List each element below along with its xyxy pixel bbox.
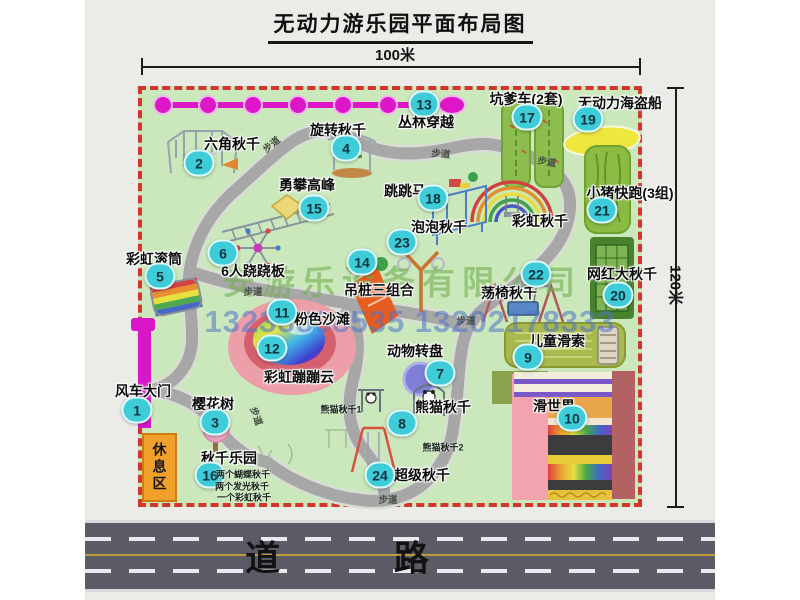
walkway-label-3: 步道: [536, 152, 557, 169]
poi-badge-8: 8: [387, 410, 418, 437]
poi-label-15: 勇攀高峰: [279, 175, 335, 195]
poi-note-16-3: 一个彩虹秋千: [217, 491, 271, 504]
poi-badge-5: 5: [145, 263, 176, 290]
poi-badge-9: 9: [513, 344, 544, 371]
poi-badge-20: 20: [603, 282, 634, 309]
poi-badge-17: 17: [512, 104, 543, 131]
poi-badge-2: 2: [184, 150, 215, 177]
poi-badge-22: 22: [521, 261, 552, 288]
poi-badge-1: 1: [122, 397, 153, 424]
walkway-label-5: 步道: [456, 313, 475, 327]
poi-label-2: 六角秋千: [204, 134, 260, 154]
poi-label-24: 超级秋千: [394, 465, 450, 485]
poi-badge-12: 12: [257, 335, 288, 362]
poi-label-rainbow-swing: 彩虹秋千: [512, 211, 568, 231]
walkway-label-7: 步道: [378, 492, 397, 506]
poi-badge-24: 24: [365, 462, 396, 489]
poi-badge-13: 13: [409, 91, 440, 118]
walkway-label-4: 步道: [243, 284, 262, 298]
walkway-label-1: 步道: [259, 133, 283, 156]
poi-label-12: 彩虹蹦蹦云: [264, 367, 334, 387]
road: 道 路: [85, 520, 715, 592]
poi-badge-10: 10: [557, 405, 588, 432]
poi-layer: 风车大门1六角秋千2樱花树3旋转秋千4彩虹滚筒56人跷跷板6动物转盘7熊猫秋千8…: [0, 0, 800, 600]
poi-label-23: 泡泡秋千: [411, 217, 467, 237]
poi-badge-19: 19: [573, 106, 604, 133]
road-label: 道 路: [219, 531, 481, 582]
poi-note-8-1: 熊猫秋千1: [320, 403, 361, 416]
poi-badge-14: 14: [347, 249, 378, 276]
poi-badge-11: 11: [267, 299, 298, 326]
poi-note-8-2: 熊猫秋千2: [422, 441, 463, 454]
poi-badge-21: 21: [587, 197, 618, 224]
poi-badge-23: 23: [387, 229, 418, 256]
poi-label-8: 熊猫秋千: [415, 397, 471, 417]
poi-label-14: 吊桩三组合: [344, 280, 414, 300]
walkway-label-2: 步道: [431, 145, 451, 161]
walkway-label-6: 步道: [247, 405, 267, 428]
poi-badge-4: 4: [331, 135, 362, 162]
poi-label-7: 动物转盘: [387, 341, 443, 361]
poi-badge-3: 3: [200, 409, 231, 436]
screenshot-stage: 无动力游乐园平面布局图 100米 120米: [0, 0, 800, 600]
poi-label-11: 粉色沙滩: [294, 309, 350, 329]
poi-badge-6: 6: [208, 240, 239, 267]
poi-badge-18: 18: [418, 185, 449, 212]
poi-badge-15: 15: [299, 195, 330, 222]
poi-badge-7: 7: [425, 360, 456, 387]
